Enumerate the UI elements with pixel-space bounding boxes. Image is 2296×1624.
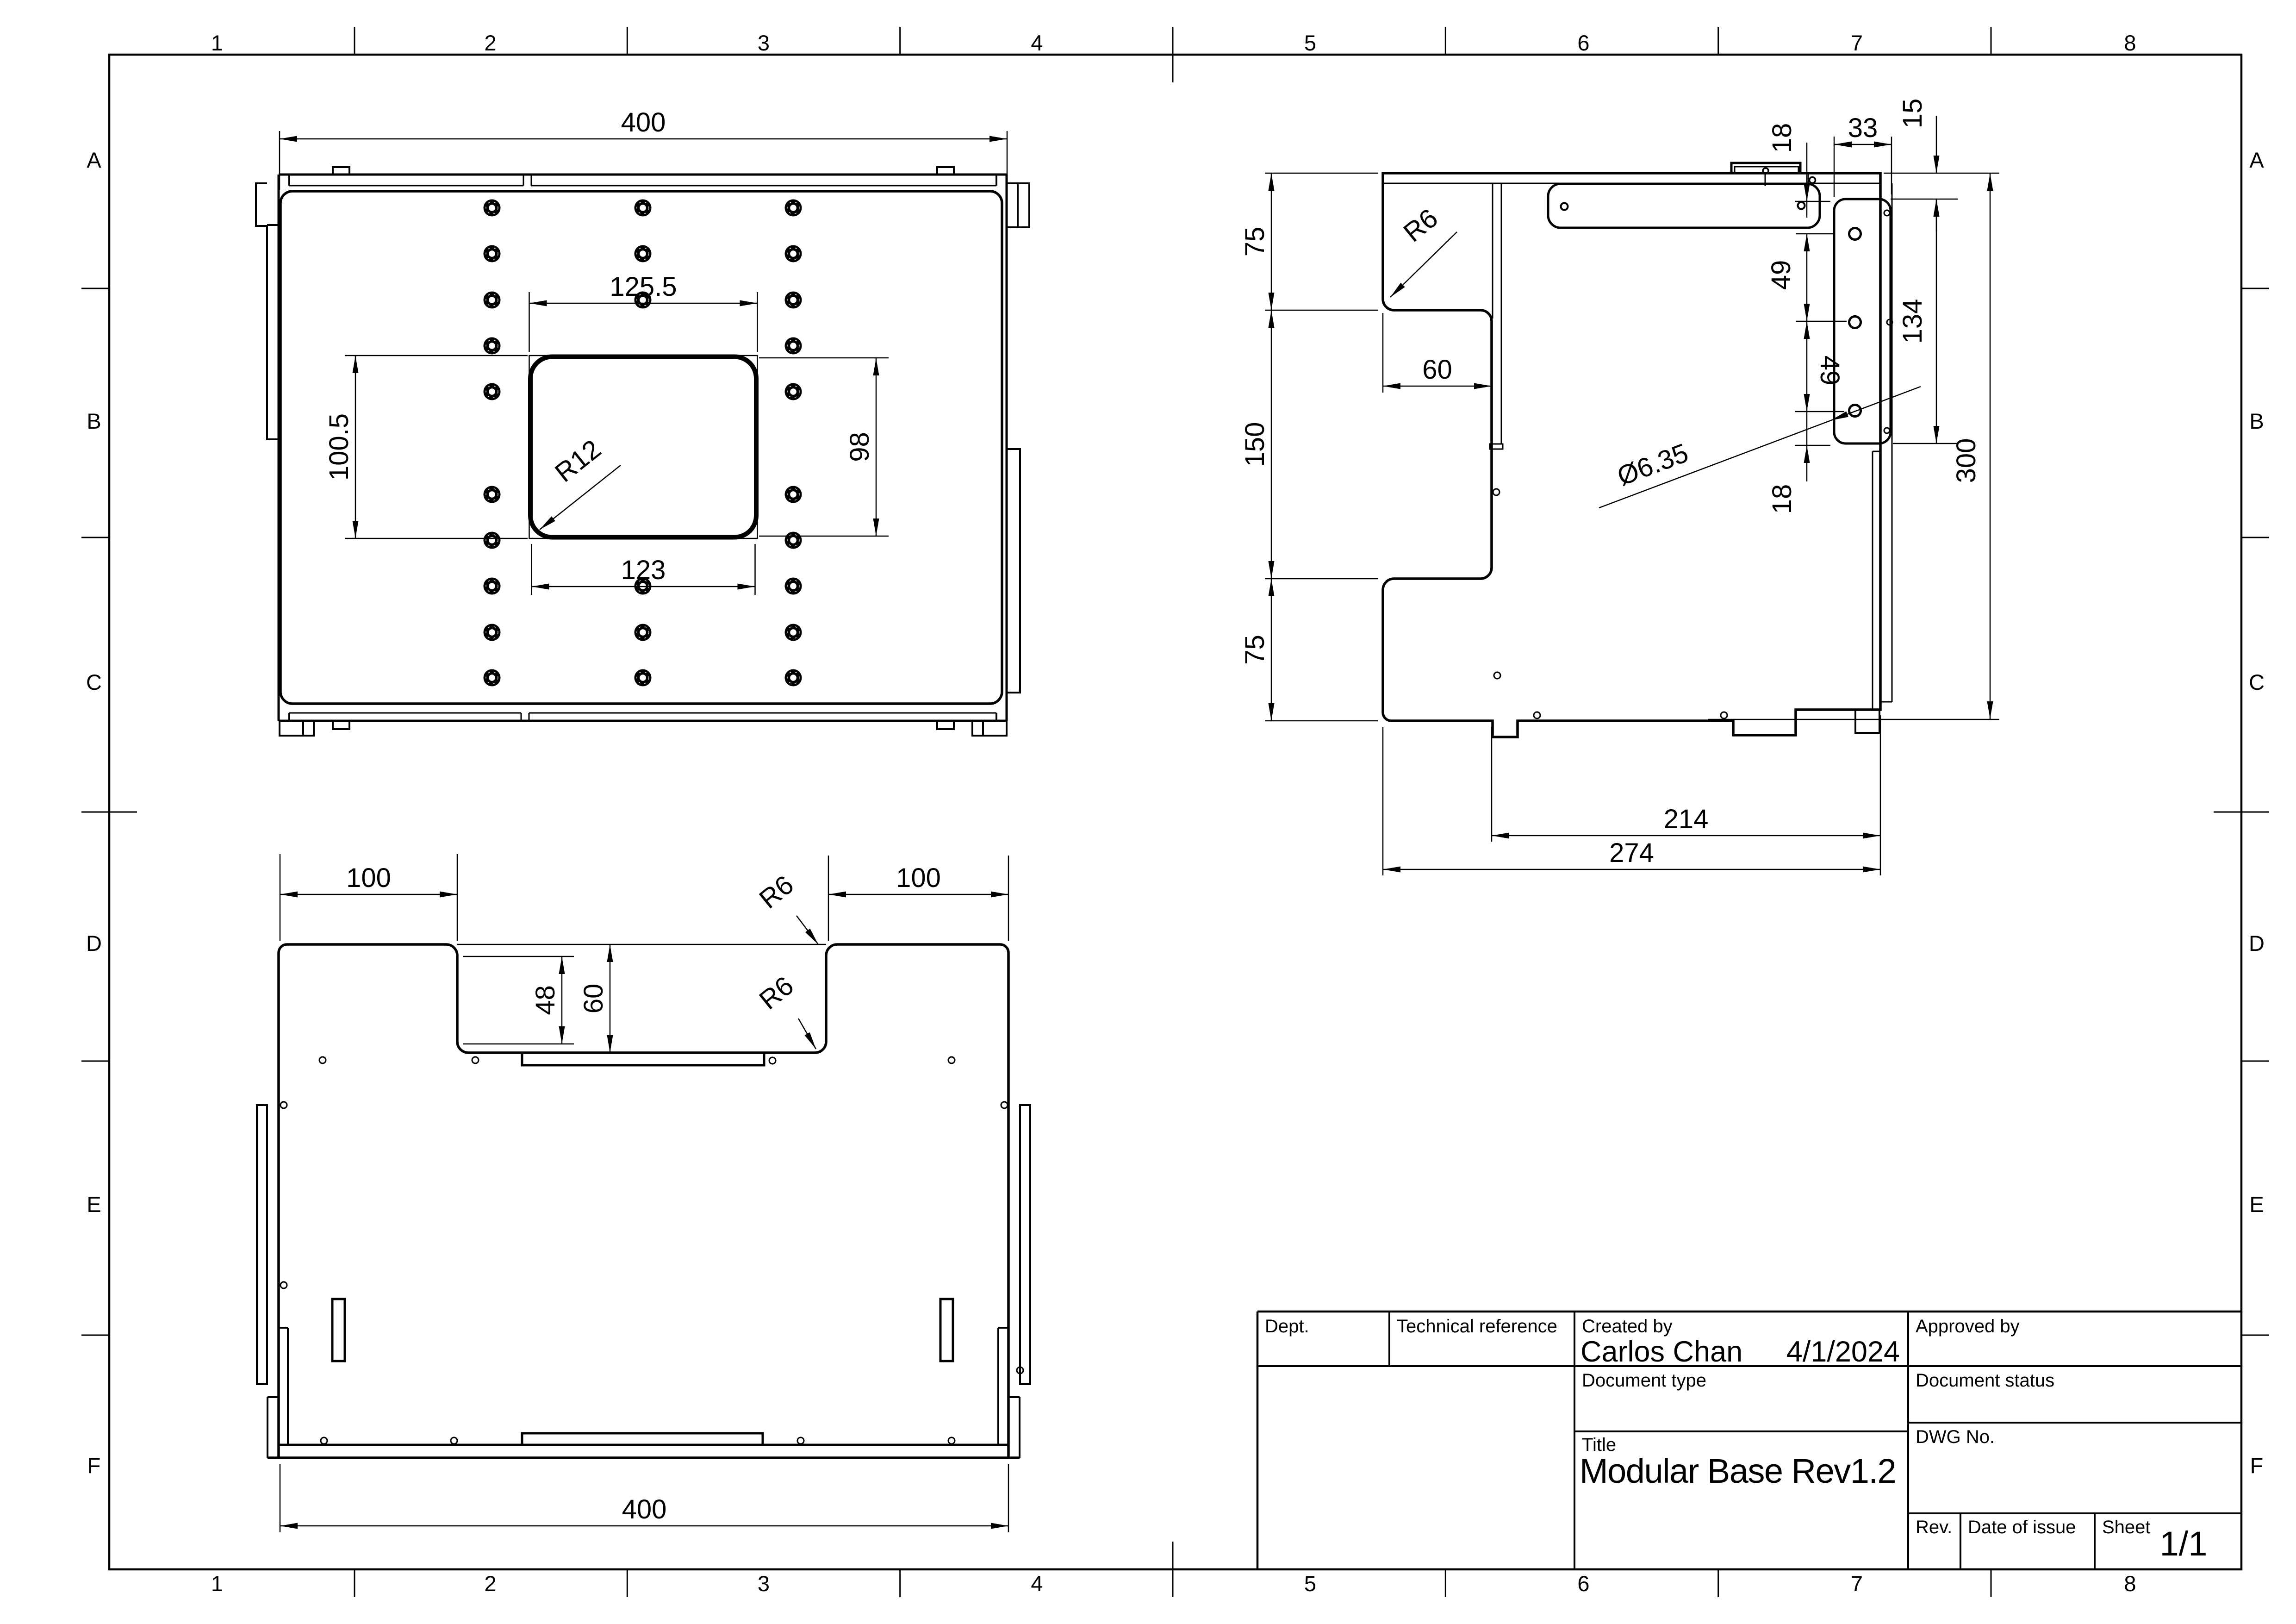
svg-text:5: 5 — [1304, 31, 1316, 55]
svg-text:8: 8 — [2124, 1571, 2136, 1596]
svg-text:98: 98 — [845, 432, 875, 462]
svg-text:5: 5 — [1304, 1571, 1316, 1596]
svg-text:Technical reference: Technical reference — [1397, 1316, 1557, 1337]
svg-text:7: 7 — [1851, 31, 1863, 55]
svg-text:123: 123 — [621, 555, 666, 585]
svg-text:2: 2 — [484, 31, 496, 55]
svg-text:Rev.: Rev. — [1916, 1517, 1952, 1537]
svg-text:1: 1 — [211, 1571, 223, 1596]
svg-text:B: B — [2249, 409, 2264, 433]
svg-text:1/1: 1/1 — [2160, 1524, 2208, 1563]
svg-text:134: 134 — [1898, 299, 1928, 344]
svg-text:D: D — [86, 931, 102, 956]
svg-text:49: 49 — [1815, 356, 1845, 386]
svg-text:Created by: Created by — [1582, 1316, 1673, 1337]
svg-text:214: 214 — [1664, 804, 1709, 834]
svg-text:Carlos Chan: Carlos Chan — [1580, 1336, 1742, 1368]
svg-text:6: 6 — [1577, 31, 1589, 55]
svg-text:4: 4 — [1031, 31, 1043, 55]
svg-text:B: B — [87, 409, 101, 433]
svg-text:18: 18 — [1767, 484, 1797, 514]
svg-text:48: 48 — [530, 985, 560, 1015]
svg-text:C: C — [2249, 670, 2265, 694]
svg-text:75: 75 — [1240, 227, 1270, 257]
svg-text:60: 60 — [579, 984, 609, 1014]
svg-text:Date of issue: Date of issue — [1968, 1517, 2076, 1537]
svg-text:E: E — [2249, 1192, 2264, 1217]
svg-text:6: 6 — [1577, 1571, 1589, 1596]
svg-text:1: 1 — [211, 31, 223, 55]
svg-text:150: 150 — [1240, 422, 1270, 467]
svg-text:4/1/2024: 4/1/2024 — [1786, 1336, 1900, 1368]
svg-text:300: 300 — [1951, 438, 1981, 483]
svg-text:18: 18 — [1767, 123, 1797, 153]
svg-text:15: 15 — [1898, 99, 1928, 129]
svg-text:100: 100 — [896, 863, 941, 893]
svg-text:7: 7 — [1851, 1571, 1863, 1596]
svg-text:75: 75 — [1240, 635, 1270, 665]
svg-text:60: 60 — [1422, 355, 1452, 385]
svg-text:125.5: 125.5 — [610, 272, 677, 302]
svg-text:100.5: 100.5 — [324, 413, 354, 481]
svg-text:E: E — [87, 1192, 101, 1217]
svg-text:F: F — [2250, 1453, 2264, 1478]
svg-text:3: 3 — [758, 1571, 770, 1596]
svg-text:400: 400 — [621, 107, 666, 137]
svg-text:A: A — [87, 148, 101, 172]
svg-text:100: 100 — [346, 863, 391, 893]
svg-text:A: A — [2249, 148, 2264, 172]
svg-text:3: 3 — [758, 31, 770, 55]
svg-text:DWG No.: DWG No. — [1916, 1427, 1995, 1447]
svg-text:Document type: Document type — [1582, 1370, 1706, 1391]
svg-text:33: 33 — [1848, 113, 1878, 143]
svg-text:Modular Base Rev1.2: Modular Base Rev1.2 — [1580, 1452, 1896, 1490]
svg-text:2: 2 — [484, 1571, 496, 1596]
svg-text:4: 4 — [1031, 1571, 1043, 1596]
svg-text:274: 274 — [1609, 838, 1654, 868]
svg-text:D: D — [2249, 931, 2265, 956]
svg-text:49: 49 — [1766, 260, 1796, 290]
svg-text:400: 400 — [622, 1494, 667, 1524]
svg-text:Dept.: Dept. — [1265, 1316, 1309, 1337]
svg-text:F: F — [87, 1453, 101, 1478]
svg-text:C: C — [86, 670, 102, 694]
svg-text:Document status: Document status — [1916, 1370, 2054, 1391]
svg-text:Sheet: Sheet — [2102, 1517, 2151, 1537]
svg-text:8: 8 — [2124, 31, 2136, 55]
svg-text:Approved by: Approved by — [1916, 1316, 2020, 1337]
